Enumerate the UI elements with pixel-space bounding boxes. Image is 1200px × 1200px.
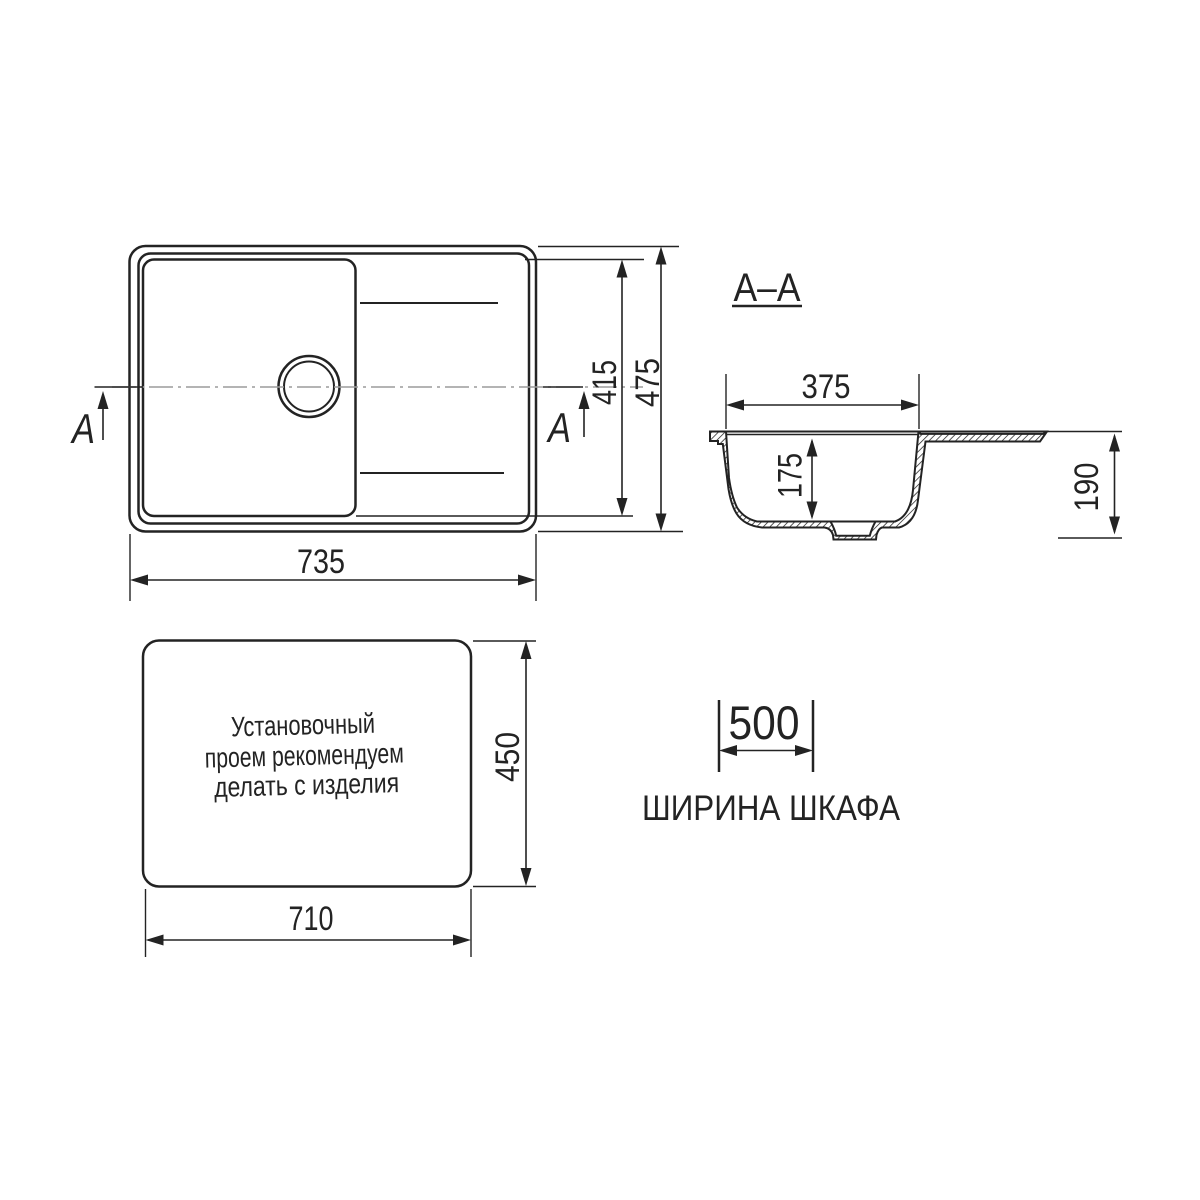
- svg-text:375: 375: [802, 368, 851, 406]
- svg-text:710: 710: [289, 900, 334, 938]
- svg-text:735: 735: [297, 543, 345, 581]
- svg-text:ШИРИНА ШКАФА: ШИРИНА ШКАФА: [642, 789, 901, 828]
- svg-text:делать с изделия: делать с изделия: [214, 767, 400, 803]
- svg-text:500: 500: [729, 696, 800, 749]
- svg-text:475: 475: [629, 358, 667, 407]
- svg-text:A–A: A–A: [734, 266, 801, 310]
- svg-text:A: A: [70, 405, 95, 452]
- svg-text:415: 415: [586, 360, 624, 405]
- svg-text:190: 190: [1068, 463, 1106, 512]
- svg-text:A: A: [546, 404, 571, 451]
- svg-text:450: 450: [489, 732, 527, 782]
- svg-text:175: 175: [772, 453, 810, 498]
- svg-text:Установочный: Установочный: [231, 708, 376, 743]
